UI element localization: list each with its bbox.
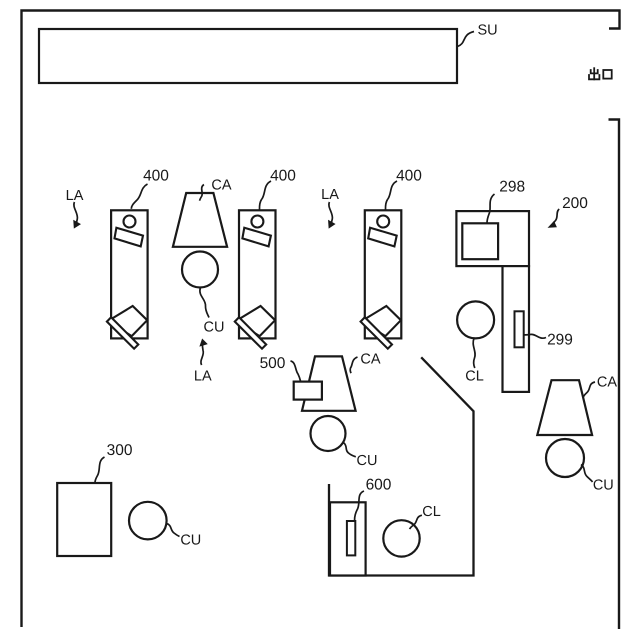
svg-text:CU: CU [357,453,378,469]
svg-text:200: 200 [562,195,588,212]
svg-text:400: 400 [270,168,296,185]
svg-text:CA: CA [360,352,380,368]
svg-text:LA: LA [321,187,339,203]
svg-text:600: 600 [366,477,392,494]
svg-text:CL: CL [465,369,484,385]
svg-text:400: 400 [143,168,169,185]
svg-text:CA: CA [211,178,231,194]
svg-text:LA: LA [66,188,84,204]
svg-text:CA: CA [597,375,617,391]
svg-text:400: 400 [396,168,422,185]
svg-text:CU: CU [593,478,614,494]
svg-text:LA: LA [194,369,212,385]
svg-text:298: 298 [499,179,525,196]
svg-text:SU: SU [478,23,498,39]
svg-text:CU: CU [204,320,225,336]
svg-text:CL: CL [422,504,441,520]
svg-text:299: 299 [547,332,573,349]
svg-text:CU: CU [180,533,201,549]
svg-text:300: 300 [107,442,133,459]
svg-text:500: 500 [260,355,286,372]
